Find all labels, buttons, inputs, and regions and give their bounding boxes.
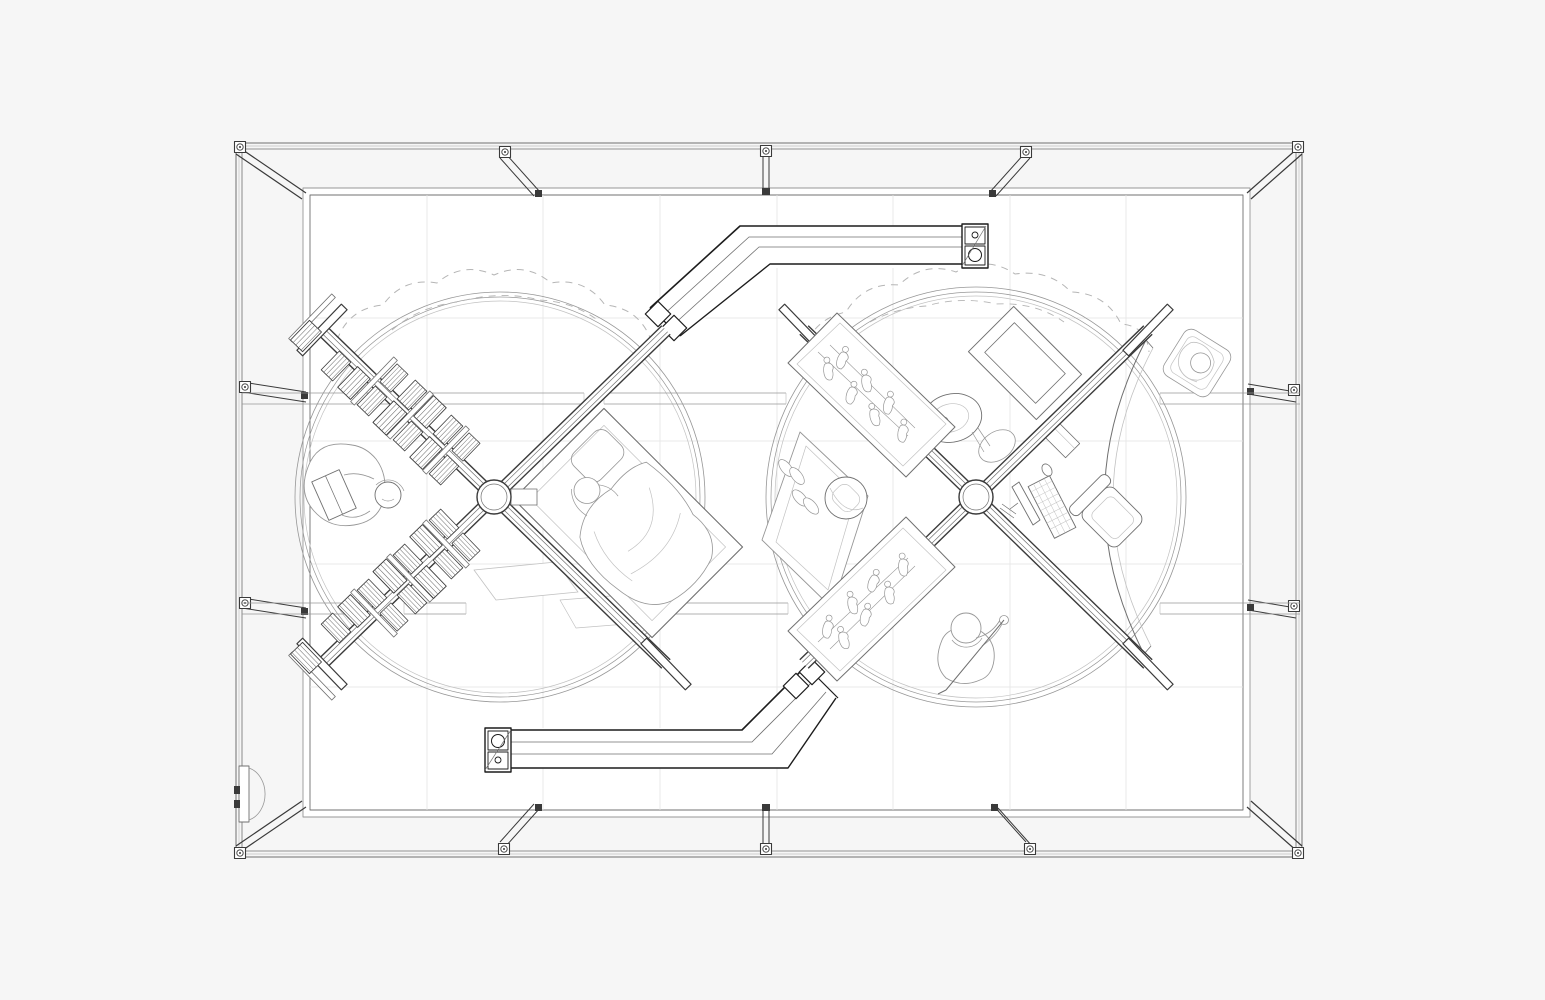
entry-door	[234, 766, 265, 822]
left-hub-column	[477, 480, 511, 514]
pouf	[825, 477, 867, 519]
axonometric-plan-drawing	[0, 0, 1545, 1000]
right-hub-column	[959, 480, 993, 514]
upper-duct-endcap	[962, 224, 988, 268]
lower-duct-endcap	[485, 728, 511, 772]
hub-ledge	[511, 489, 537, 505]
